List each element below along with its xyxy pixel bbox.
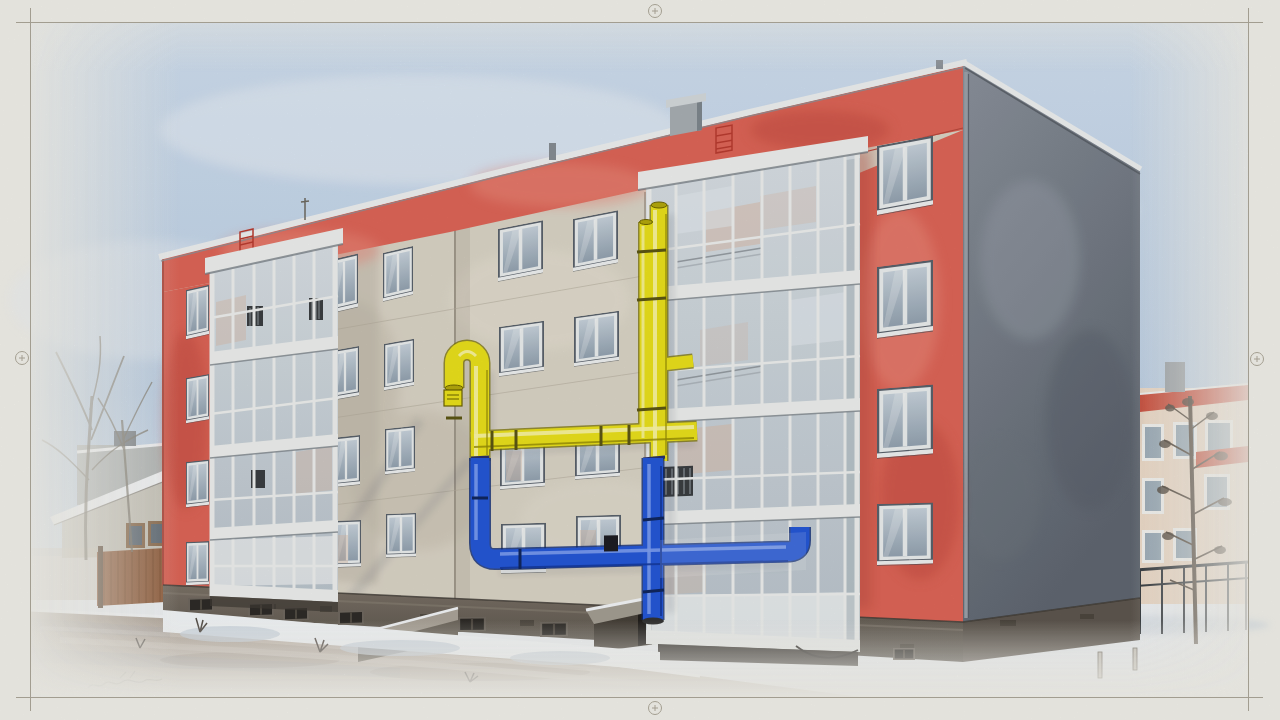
paper-grain (0, 0, 1280, 720)
scene-rendering (0, 0, 1280, 720)
drawing-sheet (0, 0, 1280, 720)
